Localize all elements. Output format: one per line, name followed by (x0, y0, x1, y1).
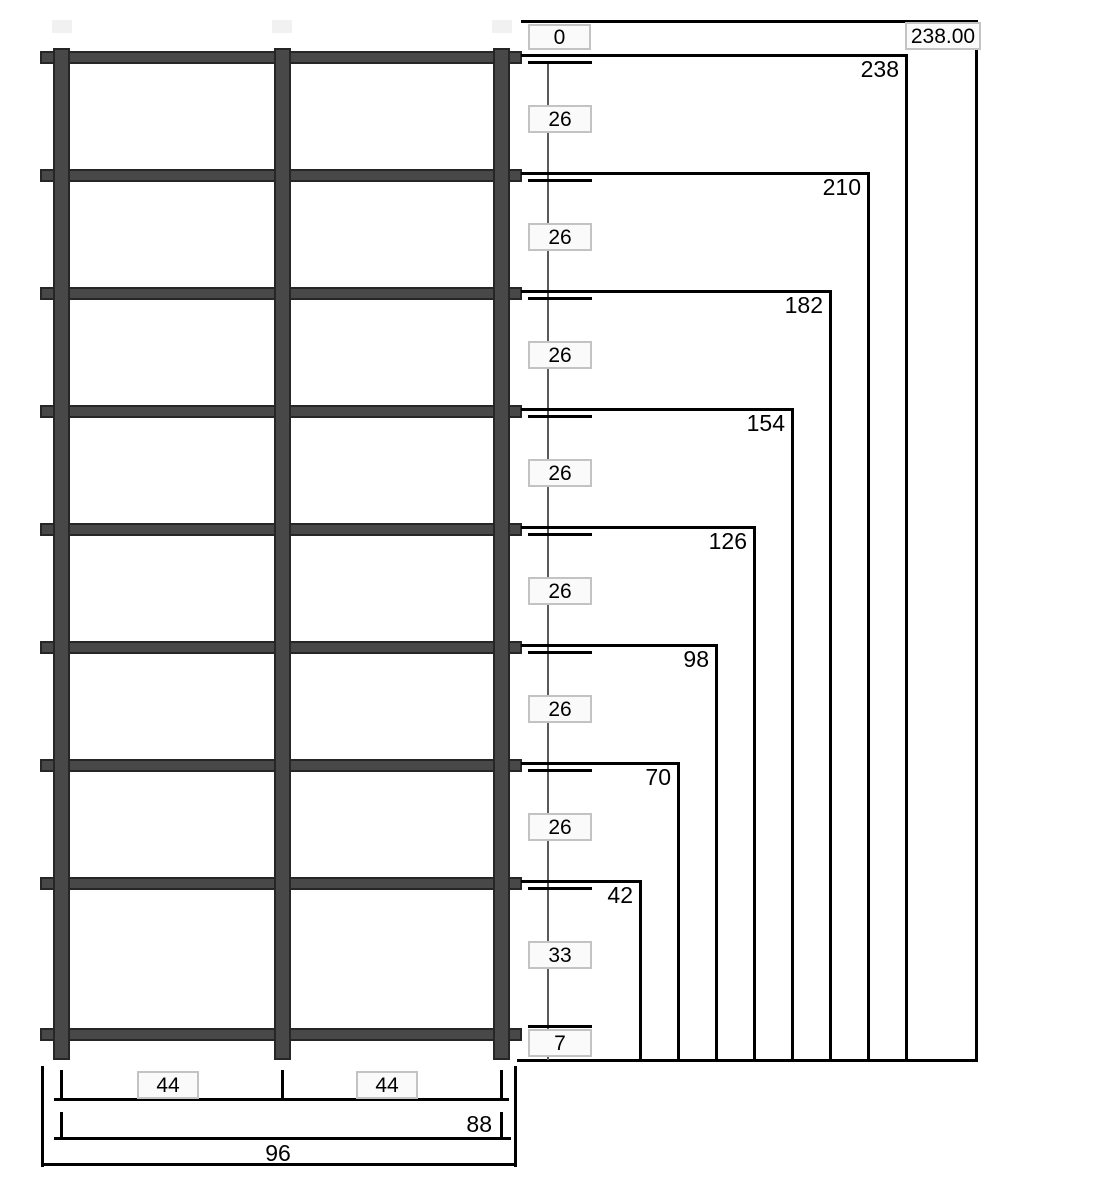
segment-value-box[interactable]: 26 (528, 695, 592, 723)
post-top-ghost-marker (52, 20, 72, 33)
ordinate-step-v (791, 408, 794, 1062)
ordinate-step-v (715, 644, 718, 1062)
ordinate-step-h (521, 54, 908, 57)
rung-center-tick (528, 1025, 592, 1028)
ordinate-step-v (639, 880, 642, 1062)
segment-value-box[interactable]: 26 (528, 105, 592, 133)
combined-span-label: 88 (430, 1113, 492, 1136)
segment-value-box[interactable]: 33 (528, 941, 592, 969)
rung-center-tick (528, 533, 592, 536)
ordinate-step-v (753, 526, 756, 1062)
dim-baseline (517, 1059, 978, 1062)
drawing-canvas: 238 210 182 154 126 98 70 42 0 238.00 26… (0, 0, 1102, 1190)
segment-value-box[interactable]: 26 (528, 813, 592, 841)
segment-value-box[interactable]: 26 (528, 459, 592, 487)
ordinate-step-v (829, 290, 832, 1062)
bottom-dim-extension-tick (281, 1070, 284, 1100)
ordinate-label: 126 (675, 530, 747, 553)
ordinate-label: 210 (789, 176, 861, 199)
span-value-box[interactable]: 44 (137, 1071, 199, 1099)
rebar-post-middle[interactable] (274, 48, 291, 1060)
span-value-box[interactable]: 44 (356, 1071, 418, 1099)
rung-center-tick (528, 651, 592, 654)
ordinate-step-v (677, 762, 680, 1062)
rung-center-tick (528, 297, 592, 300)
segment-value-box[interactable]: 26 (528, 577, 592, 605)
ordinate-step-h (521, 172, 870, 175)
bottom-dim-extension-tick (41, 1066, 44, 1167)
origin-value-box[interactable]: 0 (528, 24, 591, 50)
segment-value-box[interactable]: 26 (528, 341, 592, 369)
rung-center-tick (528, 769, 592, 772)
overall-span-label: 96 (240, 1142, 316, 1165)
rung-center-tick (528, 179, 592, 182)
segment-value-box[interactable]: 26 (528, 223, 592, 251)
bottom-dim-extension-tick (500, 1112, 503, 1140)
rebar-post-right[interactable] (493, 48, 510, 1060)
ordinate-label: 70 (599, 766, 671, 789)
bottom-dim-extension-tick (60, 1112, 63, 1140)
ordinate-step-v (867, 172, 870, 1062)
ordinate-label: 182 (751, 294, 823, 317)
bottom-dim-line-44 (54, 1098, 509, 1101)
overall-dim-right-line (975, 20, 978, 1062)
ordinate-label: 154 (713, 412, 785, 435)
bottom-dim-extension-tick (60, 1070, 63, 1100)
post-top-ghost-marker (272, 20, 292, 33)
post-top-ghost-marker (492, 20, 512, 33)
rebar-post-left[interactable] (53, 48, 70, 1060)
ordinate-label: 238 (827, 58, 899, 81)
segment-value-box[interactable]: 7 (528, 1029, 592, 1057)
ordinate-leader-line (547, 61, 549, 1060)
ordinate-label: 98 (637, 648, 709, 671)
rung-center-tick (528, 415, 592, 418)
bottom-dim-extension-tick (514, 1066, 517, 1167)
bottom-dim-extension-tick (500, 1070, 503, 1100)
rung-center-tick (528, 61, 592, 64)
rung-center-tick (528, 887, 592, 890)
overall-value-box[interactable]: 238.00 (905, 22, 981, 50)
ordinate-step-v (905, 54, 908, 1062)
